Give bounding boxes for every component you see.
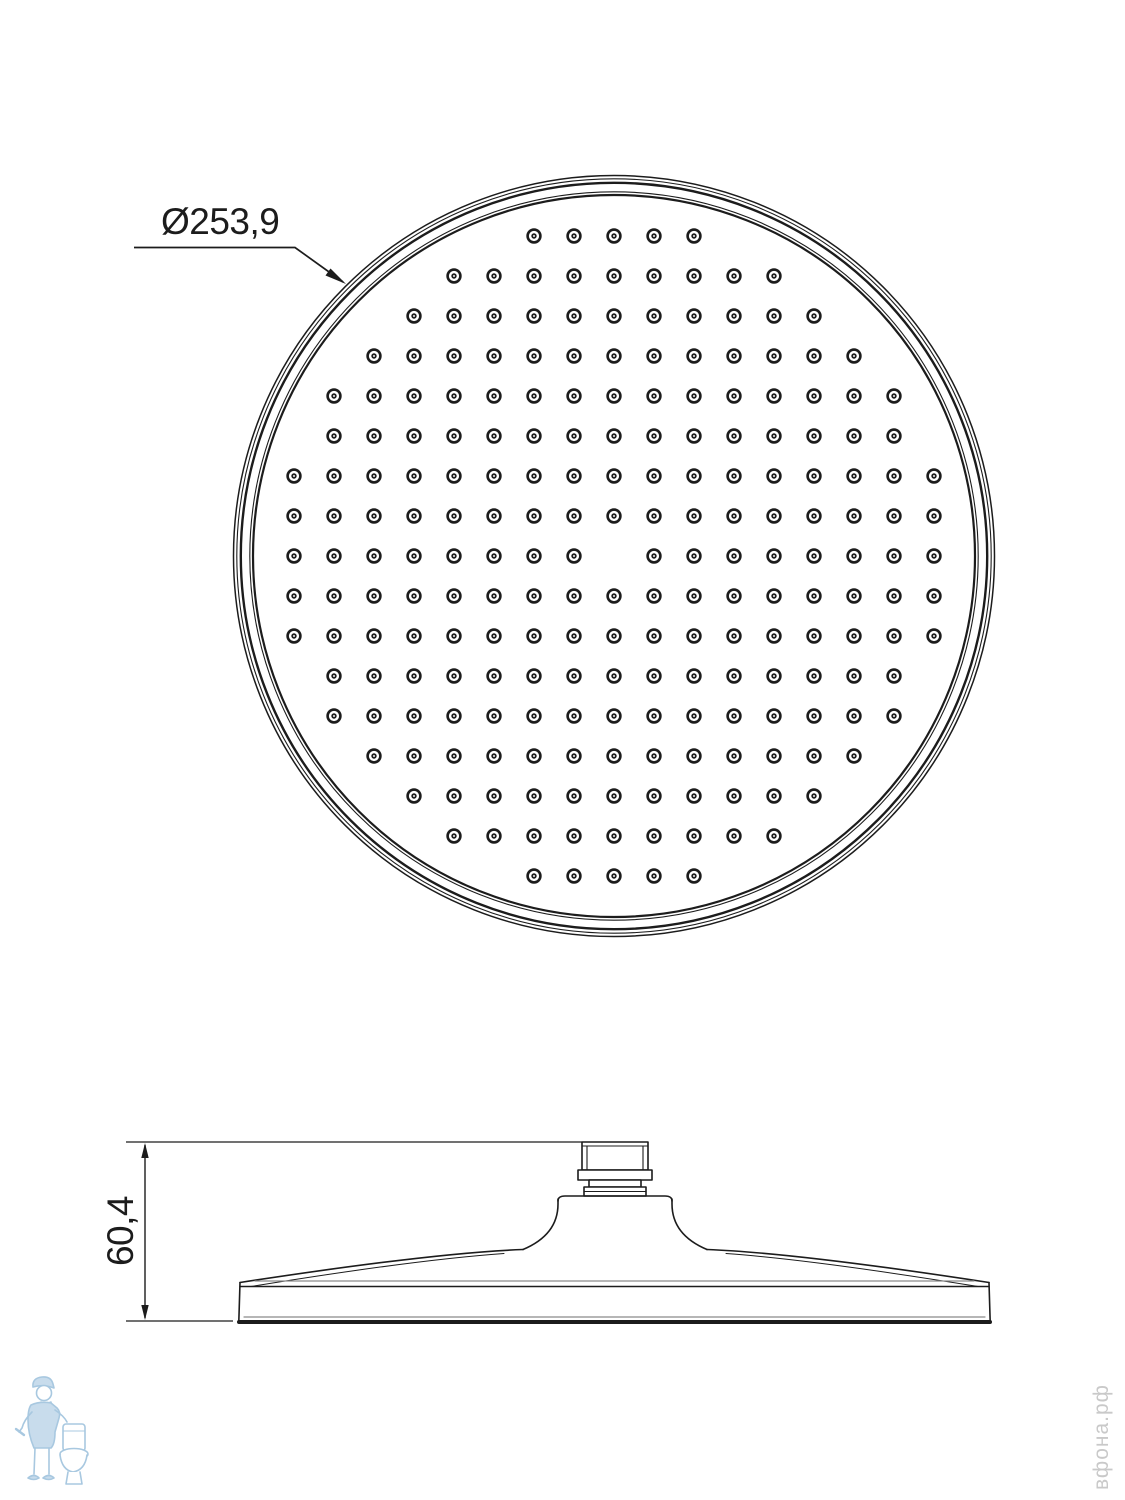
nozzle [408, 550, 421, 563]
nozzle [448, 670, 461, 683]
neck-flare-right [672, 1199, 707, 1250]
nozzle [568, 510, 581, 523]
nozzle [688, 510, 701, 523]
nozzle [688, 310, 701, 323]
nozzle [848, 510, 861, 523]
nozzle [568, 350, 581, 363]
nozzle [648, 230, 661, 243]
nozzle [288, 550, 301, 563]
rim-circle [253, 195, 975, 917]
nozzle [488, 350, 501, 363]
nozzle [448, 350, 461, 363]
nozzle [528, 430, 541, 443]
nozzle [608, 870, 621, 883]
nozzle [688, 870, 701, 883]
nozzle [648, 590, 661, 603]
nozzle [328, 710, 341, 723]
height-arrow-down [141, 1305, 148, 1320]
nozzle [888, 470, 901, 483]
nozzle [408, 310, 421, 323]
nozzle [448, 510, 461, 523]
nozzle [448, 830, 461, 843]
nozzle [648, 390, 661, 403]
nozzle [568, 550, 581, 563]
nozzle [768, 510, 781, 523]
nozzle [408, 590, 421, 603]
nozzle [688, 390, 701, 403]
nozzle [688, 790, 701, 803]
nozzle [728, 590, 741, 603]
nozzle [808, 750, 821, 763]
height-label: 60,4 [100, 1196, 141, 1266]
nozzle [448, 270, 461, 283]
nozzle [288, 590, 301, 603]
nozzle [488, 310, 501, 323]
nozzle [648, 510, 661, 523]
nozzle [568, 390, 581, 403]
nozzle-grid [288, 230, 941, 883]
nozzle [608, 510, 621, 523]
nozzle [328, 430, 341, 443]
nozzle [648, 670, 661, 683]
nozzle [488, 270, 501, 283]
top-surface-left [240, 1250, 523, 1283]
nozzle [568, 710, 581, 723]
nozzle [768, 430, 781, 443]
nozzle [728, 630, 741, 643]
nozzle [408, 510, 421, 523]
nozzle [888, 630, 901, 643]
nozzle [648, 750, 661, 763]
nozzle [528, 750, 541, 763]
diameter-label: Ø253,9 [161, 201, 279, 242]
nozzle [528, 510, 541, 523]
nozzle [688, 430, 701, 443]
nozzle [688, 830, 701, 843]
nozzle [888, 710, 901, 723]
nozzle [728, 390, 741, 403]
nozzle [768, 710, 781, 723]
nozzle [448, 430, 461, 443]
shower-head-technical-drawing: Ø253,9 60,4 [0, 0, 1125, 1500]
neck-flare-left [523, 1199, 558, 1250]
nozzle [608, 710, 621, 723]
nozzle [488, 750, 501, 763]
top-view [234, 176, 995, 937]
nozzle [568, 470, 581, 483]
nozzle [808, 350, 821, 363]
nozzle [688, 670, 701, 683]
nozzle [408, 630, 421, 643]
nozzle [728, 670, 741, 683]
nozzle [488, 550, 501, 563]
nozzle [608, 590, 621, 603]
nozzle [888, 510, 901, 523]
nozzle [648, 870, 661, 883]
nozzle [368, 750, 381, 763]
nozzle [768, 310, 781, 323]
nozzle [568, 310, 581, 323]
nozzle [568, 790, 581, 803]
nozzle [368, 430, 381, 443]
nozzle [688, 710, 701, 723]
nozzle [928, 550, 941, 563]
watermark-logo [16, 1377, 88, 1484]
nozzle [728, 350, 741, 363]
nozzle [688, 230, 701, 243]
nozzle [848, 470, 861, 483]
nozzle [728, 310, 741, 323]
site-watermark-text: вфона.рф [1090, 1384, 1113, 1490]
nozzle [608, 790, 621, 803]
nozzle [888, 590, 901, 603]
nozzle [688, 470, 701, 483]
nozzle [368, 670, 381, 683]
nozzle [488, 510, 501, 523]
nozzle [808, 550, 821, 563]
nozzle [408, 790, 421, 803]
rim-circle [241, 183, 987, 929]
nozzle [728, 510, 741, 523]
nozzle [648, 550, 661, 563]
nozzle [848, 750, 861, 763]
nozzle [808, 590, 821, 603]
nozzle [528, 270, 541, 283]
nozzle [728, 430, 741, 443]
nozzle [848, 590, 861, 603]
nozzle [688, 270, 701, 283]
nozzle [808, 310, 821, 323]
nozzle [888, 430, 901, 443]
nozzle [448, 550, 461, 563]
nozzle [608, 430, 621, 443]
nozzle [648, 630, 661, 643]
nozzle [768, 750, 781, 763]
nozzle [408, 470, 421, 483]
nozzle [848, 710, 861, 723]
nozzle [368, 630, 381, 643]
nozzle [568, 750, 581, 763]
nozzle [488, 710, 501, 723]
nozzle [768, 790, 781, 803]
nozzle [528, 870, 541, 883]
nozzle [728, 550, 741, 563]
nozzle [648, 790, 661, 803]
nozzle [568, 870, 581, 883]
diameter-leader-line [134, 248, 343, 283]
nozzle [488, 830, 501, 843]
nozzle [488, 470, 501, 483]
nozzle [448, 470, 461, 483]
nozzle [408, 750, 421, 763]
nozzle [488, 790, 501, 803]
nozzle [688, 630, 701, 643]
nozzle [608, 830, 621, 843]
nozzle [768, 270, 781, 283]
nozzle [808, 510, 821, 523]
nozzle [928, 510, 941, 523]
nozzle [328, 510, 341, 523]
nozzle [688, 350, 701, 363]
nozzle [488, 430, 501, 443]
nozzle [768, 350, 781, 363]
nozzle [408, 710, 421, 723]
nozzle [528, 790, 541, 803]
nozzle [648, 310, 661, 323]
technical-drawing-page: Ø253,9 60,4 [0, 0, 1125, 1500]
stem-small-cylinder [589, 1180, 641, 1187]
nozzle [848, 350, 861, 363]
nozzle [808, 470, 821, 483]
nozzle [568, 830, 581, 843]
nozzle [608, 390, 621, 403]
nozzle [808, 630, 821, 643]
nozzle [568, 270, 581, 283]
rim-right-edge [989, 1283, 990, 1323]
nozzle [848, 390, 861, 403]
nozzle [568, 630, 581, 643]
nozzle [448, 790, 461, 803]
nozzle [608, 270, 621, 283]
nozzle [648, 830, 661, 843]
nozzle [328, 390, 341, 403]
nozzle [368, 390, 381, 403]
nozzle [728, 830, 741, 843]
nozzle [848, 630, 861, 643]
nozzle [808, 710, 821, 723]
nozzle [528, 590, 541, 603]
nozzle [768, 390, 781, 403]
nozzle [528, 550, 541, 563]
nozzle [328, 670, 341, 683]
nozzle [608, 470, 621, 483]
nozzle [648, 350, 661, 363]
nozzle [488, 630, 501, 643]
nozzle [328, 590, 341, 603]
nozzle [848, 550, 861, 563]
nozzle [768, 670, 781, 683]
nozzle [488, 670, 501, 683]
nozzle [728, 270, 741, 283]
nozzle [448, 630, 461, 643]
nozzle [728, 790, 741, 803]
diameter-dimension: Ø253,9 [134, 201, 346, 284]
nozzle [328, 550, 341, 563]
nozzle [768, 590, 781, 603]
nozzle [528, 670, 541, 683]
nozzle [408, 390, 421, 403]
nozzle [728, 710, 741, 723]
nozzle [448, 710, 461, 723]
nozzle [888, 550, 901, 563]
nozzle [568, 230, 581, 243]
height-dimension: 60,4 [100, 1142, 582, 1321]
nozzle [408, 430, 421, 443]
nozzle [768, 470, 781, 483]
nozzle [608, 230, 621, 243]
nozzle [688, 750, 701, 763]
nozzle [808, 790, 821, 803]
nozzle [648, 710, 661, 723]
rim-circles [234, 176, 995, 937]
nozzle [448, 750, 461, 763]
nozzle [688, 550, 701, 563]
nozzle [448, 310, 461, 323]
nozzle [608, 630, 621, 643]
nozzle [808, 670, 821, 683]
nozzle [488, 390, 501, 403]
nozzle [408, 350, 421, 363]
neck-cap [558, 1196, 672, 1201]
nozzle [528, 390, 541, 403]
nozzle [608, 750, 621, 763]
nozzle [288, 510, 301, 523]
side-view [239, 1142, 990, 1322]
nozzle [448, 390, 461, 403]
nozzle [568, 430, 581, 443]
nozzle [608, 350, 621, 363]
nozzle [768, 830, 781, 843]
nozzle [648, 430, 661, 443]
nozzle [328, 630, 341, 643]
nozzle [288, 470, 301, 483]
nozzle [488, 590, 501, 603]
nozzle [568, 590, 581, 603]
nozzle [928, 470, 941, 483]
nozzle [608, 670, 621, 683]
nozzle [408, 670, 421, 683]
nozzle [528, 830, 541, 843]
nozzle [528, 350, 541, 363]
nozzle [648, 270, 661, 283]
nozzle [928, 630, 941, 643]
nozzle [528, 230, 541, 243]
nozzle [368, 550, 381, 563]
nozzle [328, 470, 341, 483]
nozzle [688, 590, 701, 603]
nozzle [368, 350, 381, 363]
nozzle [808, 430, 821, 443]
nozzle [928, 590, 941, 603]
nozzle [608, 310, 621, 323]
stem-flange [578, 1170, 652, 1180]
nozzle [368, 510, 381, 523]
nozzle [888, 670, 901, 683]
rim-left-edge [239, 1283, 240, 1323]
nozzle [728, 470, 741, 483]
nozzle [288, 630, 301, 643]
nozzle [848, 430, 861, 443]
nozzle [528, 630, 541, 643]
nozzle [888, 390, 901, 403]
nozzle [768, 550, 781, 563]
toilet-icon [60, 1424, 88, 1484]
height-arrow-up [141, 1143, 148, 1158]
nozzle [368, 710, 381, 723]
nozzle [808, 390, 821, 403]
nozzle [448, 590, 461, 603]
top-surface-right [707, 1250, 989, 1283]
nozzle [368, 470, 381, 483]
nozzle [528, 310, 541, 323]
plumber-figure-icon [16, 1377, 67, 1480]
nozzle [728, 750, 741, 763]
nozzle [528, 470, 541, 483]
nozzle [768, 630, 781, 643]
nozzle [848, 670, 861, 683]
nozzle [648, 470, 661, 483]
nozzle [368, 590, 381, 603]
nozzle [528, 710, 541, 723]
nozzle [568, 670, 581, 683]
